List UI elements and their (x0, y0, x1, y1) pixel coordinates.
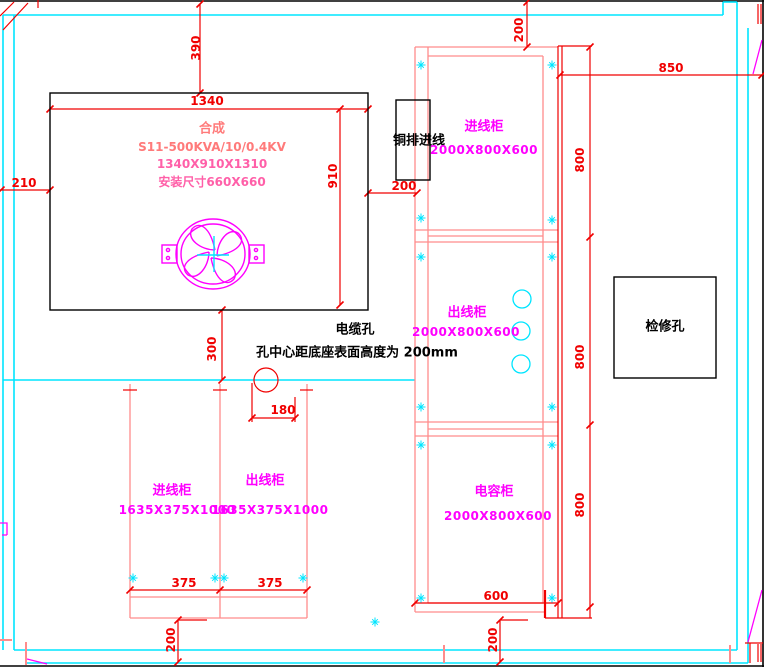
transformer-model: S11-500KVA/10/0.4KV (138, 141, 286, 153)
transformer-title: 合成 (199, 123, 225, 136)
dim-cab-top-200: 200 (513, 17, 525, 42)
dim-right-850: 850 (658, 62, 683, 74)
equipment-boxes (50, 93, 716, 378)
dim-sec3-800: 800 (574, 492, 586, 517)
dim-hole-180: 180 (270, 404, 295, 416)
fan-icon (162, 219, 264, 289)
dim-sec2-800: 800 (574, 344, 586, 369)
cabinet-capacitor-label: 电容柜 (474, 486, 513, 499)
wall-openings (0, 640, 730, 665)
dim-lv1-375: 375 (171, 577, 196, 589)
dim-lv-bottom-200: 200 (165, 627, 177, 652)
cable-hole-title: 电缆孔 (335, 324, 374, 337)
floor-plan-drawing: 合成 S11-500KVA/10/0.4KV 1340X910X1310 安装尺… (0, 0, 764, 667)
lv-outlet-size: 1635X375X1000 (212, 504, 329, 516)
dim-top-390: 390 (190, 35, 202, 60)
dim-sec1-800: 800 (574, 147, 586, 172)
cabinet-inlet-size: 2000X800X600 (430, 144, 538, 156)
cable-hole-detail: 孔中心距底座表面高度为 200mm (256, 347, 458, 360)
dim-gap-200: 200 (391, 180, 416, 192)
cabinet-capacitor-size: 2000X800X600 (444, 510, 552, 522)
dim-depth-910: 910 (327, 163, 339, 188)
cabinet-inlet-label: 进线柜 (464, 121, 503, 134)
dim-left-210: 210 (11, 177, 36, 189)
cabinet-outlet-label: 出线柜 (447, 307, 486, 320)
room-walls (3, 2, 748, 663)
dim-cab-width-600: 600 (483, 590, 508, 602)
lv-outlet-label: 出线柜 (245, 475, 284, 488)
lv-inlet-label: 进线柜 (152, 485, 191, 498)
inspection-hole-label: 检修孔 (645, 321, 684, 334)
dim-cab-bottom-200: 200 (487, 627, 499, 652)
transformer-size: 1340X910X1310 (157, 158, 267, 170)
dim-lv2-375: 375 (257, 577, 282, 589)
cabinet-outlet-size: 2000X800X600 (412, 326, 520, 338)
dim-below-300: 300 (206, 336, 218, 361)
dim-width-1340: 1340 (190, 95, 223, 107)
transformer-install: 安装尺寸660X660 (158, 176, 265, 188)
